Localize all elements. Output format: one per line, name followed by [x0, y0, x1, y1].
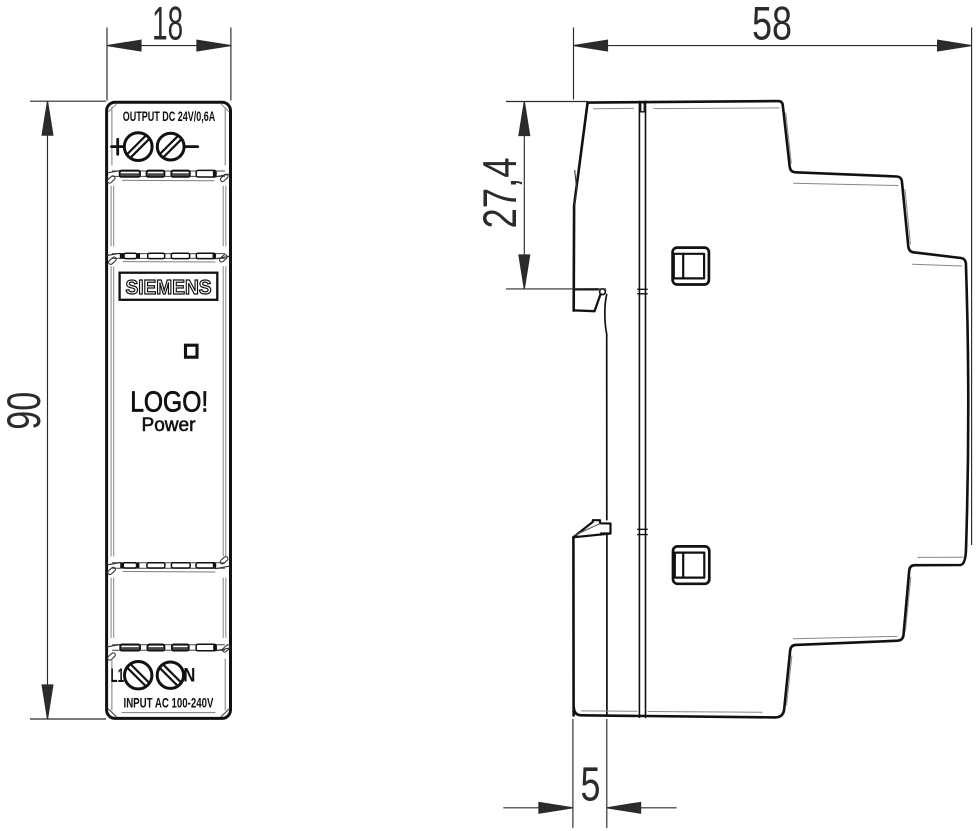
svg-text:SIEMENS: SIEMENS	[126, 276, 212, 299]
svg-text:OUTPUT DC 24V/0,6A: OUTPUT DC 24V/0,6A	[123, 108, 216, 124]
svg-text:5: 5	[581, 759, 601, 812]
svg-text:18: 18	[152, 0, 183, 49]
svg-text:N: N	[183, 665, 195, 687]
svg-text:27,4: 27,4	[473, 158, 526, 229]
svg-text:LOGO!: LOGO!	[130, 387, 208, 419]
svg-text:90: 90	[0, 392, 50, 430]
svg-text:Power: Power	[142, 415, 197, 436]
svg-text:58: 58	[752, 0, 792, 49]
svg-text:INPUT AC 100-240V: INPUT AC 100-240V	[124, 695, 214, 711]
svg-text:L1: L1	[111, 665, 125, 687]
